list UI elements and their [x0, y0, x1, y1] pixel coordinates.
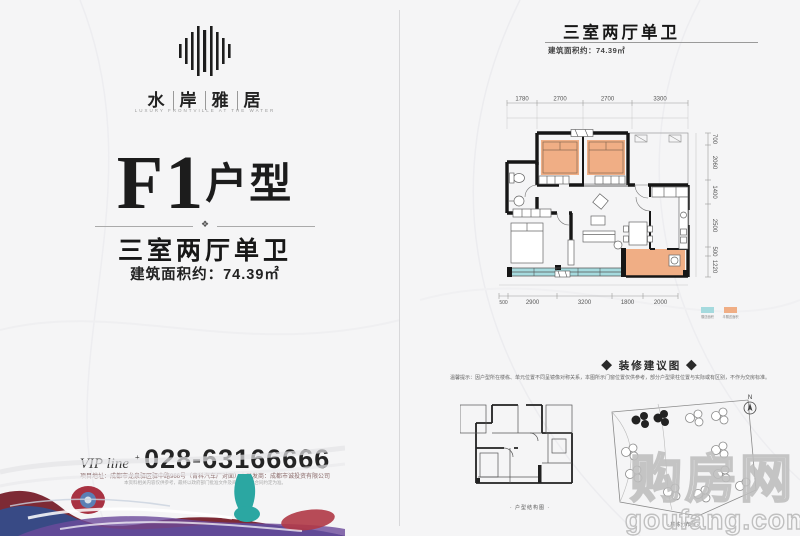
- watermark-en: goufang.com: [625, 504, 800, 536]
- layout-title: 三室两厅单卫: [55, 231, 355, 267]
- mini-structure-plan: [460, 392, 600, 514]
- svg-text:2500: 2500: [711, 219, 717, 233]
- svg-text:1800: 1800: [621, 300, 635, 306]
- watermark-cn: 购房网: [625, 454, 800, 506]
- wave-artwork: [0, 438, 345, 536]
- title-divider-ornament-icon: ❖: [95, 219, 315, 230]
- svg-text:2700: 2700: [553, 97, 567, 103]
- svg-text:N: N: [748, 395, 752, 401]
- svg-text:2000: 2000: [654, 300, 668, 306]
- svg-text:半赠送面积: 半赠送面积: [723, 314, 740, 319]
- highlighted-buildings: [632, 410, 670, 428]
- suggestion-note: 温馨提示：因户型所在楼栋、单元位置不同呈镜像对称关系，本图所示门窗位置仅供参考，…: [448, 374, 772, 381]
- page-divider: [399, 10, 400, 526]
- brand-tagline: LUXURY FRONTVILLE AT THE WATER: [60, 108, 350, 113]
- svg-text:3200: 3200: [578, 300, 592, 306]
- svg-text:2060: 2060: [711, 156, 717, 170]
- unit-title: F1户型: [55, 140, 355, 227]
- svg-text:2900: 2900: [526, 300, 540, 306]
- mini-plan-caption: · 户型结构图 ·: [460, 504, 600, 511]
- svg-text:1220: 1220: [711, 260, 717, 274]
- unit-suffix: 户型: [205, 160, 293, 207]
- svg-text:500: 500: [711, 246, 717, 257]
- area-text: 建筑面积约：74.39㎡: [55, 263, 355, 284]
- svg-text:500: 500: [499, 300, 508, 306]
- plan-title: 三室两厅单卫: [563, 19, 680, 43]
- terrace-outline: [628, 133, 688, 185]
- brochure-page: { "colors": { "accent_orange": "#f0ae85"…: [0, 0, 800, 536]
- plan-title-underline: [545, 42, 758, 43]
- compass-icon: N: [744, 395, 756, 414]
- watermark: 购房网 goufang.com: [625, 454, 800, 536]
- svg-text:赠送面积: 赠送面积: [701, 314, 715, 319]
- brand-logo-icon: [173, 22, 237, 80]
- svg-text:1400: 1400: [711, 185, 717, 199]
- suggestion-header: ◆ 装修建议图 ◆: [490, 358, 800, 373]
- unit-code: F1: [117, 141, 205, 225]
- svg-text:700: 700: [711, 134, 717, 145]
- plan-area-text: 建筑面积约：74.39㎡: [548, 45, 625, 56]
- svg-text:2700: 2700: [601, 97, 615, 103]
- floor-plan: 1780 2700 2700 3300 700 2060 1400 2500 5…: [445, 85, 755, 320]
- door-arcs: [525, 185, 650, 225]
- svg-text:1780: 1780: [515, 97, 529, 103]
- svg-text:3300: 3300: [653, 97, 667, 103]
- plan-legend: 赠送面积 半赠送面积: [701, 307, 739, 319]
